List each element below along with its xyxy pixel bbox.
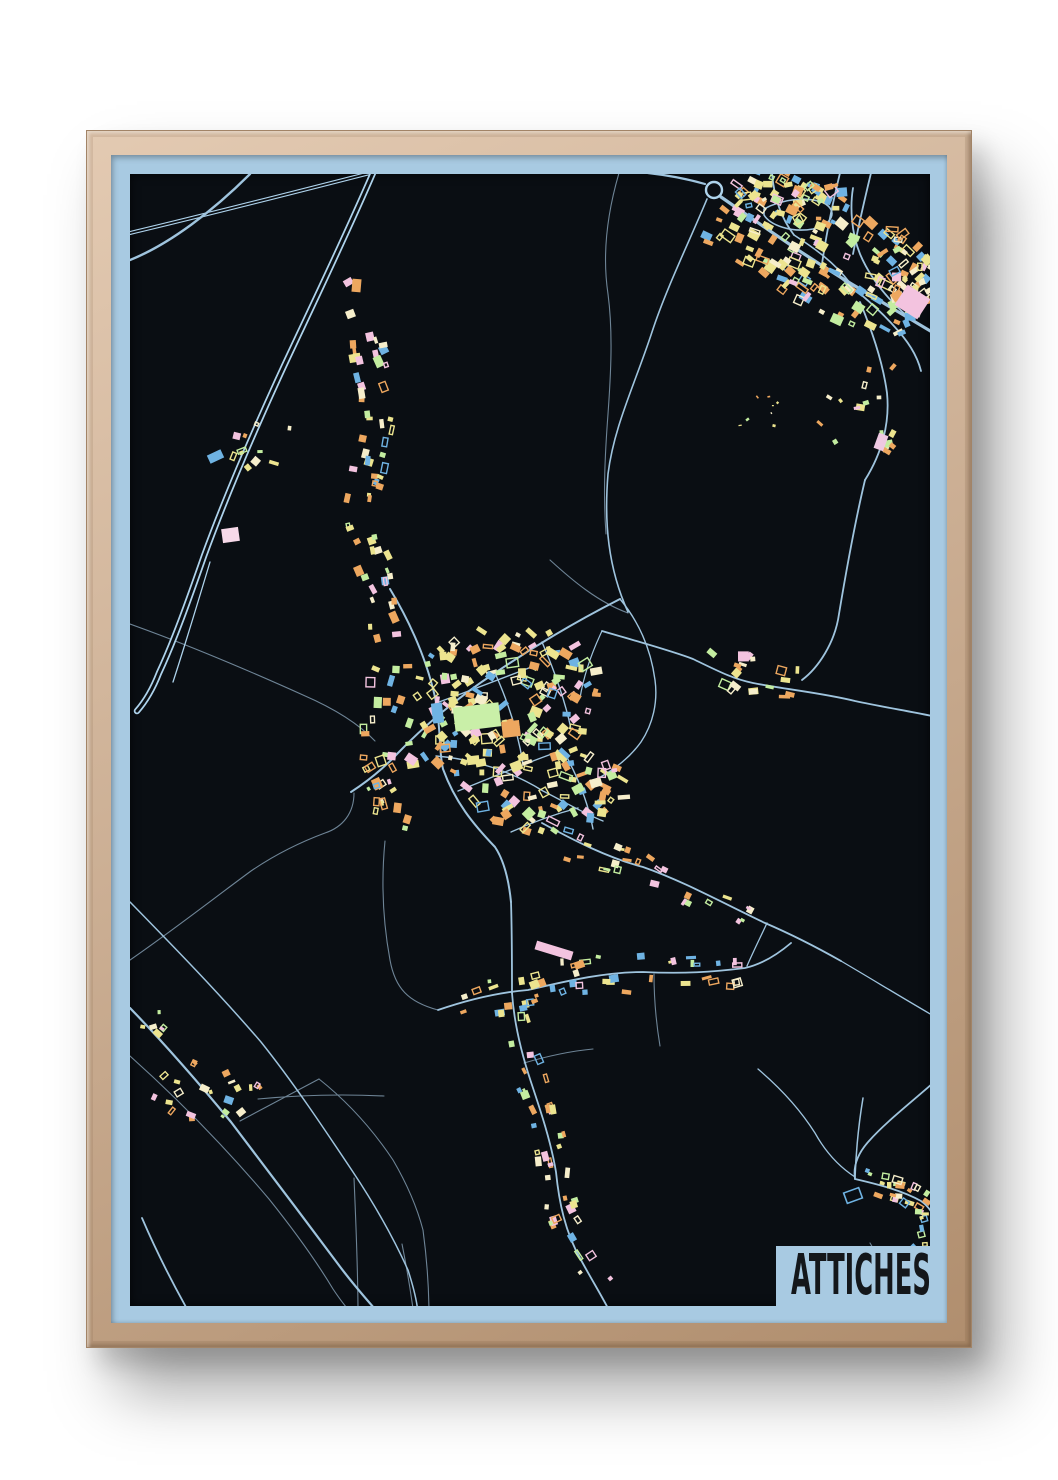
map-canvas: ATTICHES — [130, 174, 930, 1306]
picture-frame: ATTICHES — [86, 130, 972, 1348]
minor-roads-layer — [130, 174, 904, 1306]
poster-title: ATTICHES — [791, 1246, 931, 1306]
landmark-buildings-layer — [207, 279, 930, 1204]
roundabout — [706, 182, 722, 198]
map-title-band: ATTICHES — [776, 1246, 930, 1306]
wall: ATTICHES — [0, 0, 1058, 1480]
poster-mat: ATTICHES — [111, 155, 947, 1323]
map-layers — [130, 174, 930, 1306]
attiches-map-svg — [130, 174, 930, 1306]
